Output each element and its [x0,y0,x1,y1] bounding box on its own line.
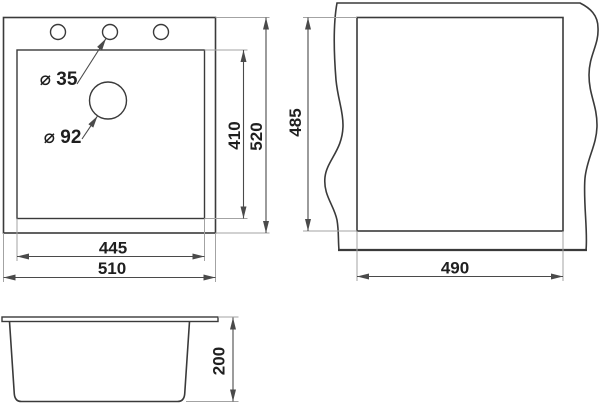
cutout-length-value: 485 [286,108,305,136]
cutout-view: 485 490 [286,3,598,281]
side-view: 200 [2,317,239,402]
sink-technical-drawing: ⌀ 35 ⌀ 92 410 520 445 510 [0,0,600,408]
overall-length-value: 520 [247,122,266,150]
rim-flange-outline [2,317,218,322]
drawing-canvas: ⌀ 35 ⌀ 92 410 520 445 510 [0,0,600,408]
top-view: ⌀ 35 ⌀ 92 410 520 445 510 [4,18,270,283]
cutout-opening-outline [357,18,563,232]
cutout-width-value: 490 [441,259,469,278]
drain-hole [90,82,127,119]
faucet-hole-center [103,25,118,40]
bowl-length-value: 410 [225,121,244,149]
drain-hole-diameter-label: ⌀ 92 [44,127,82,148]
faucet-hole-left [51,25,66,40]
depth-value: 200 [210,347,229,375]
faucet-hole-diameter-label: ⌀ 35 [40,69,78,90]
bowl-width-value: 445 [99,239,127,258]
faucet-hole-right [154,25,169,40]
bowl-profile-outline [10,322,190,402]
overall-width-value: 510 [98,259,126,278]
